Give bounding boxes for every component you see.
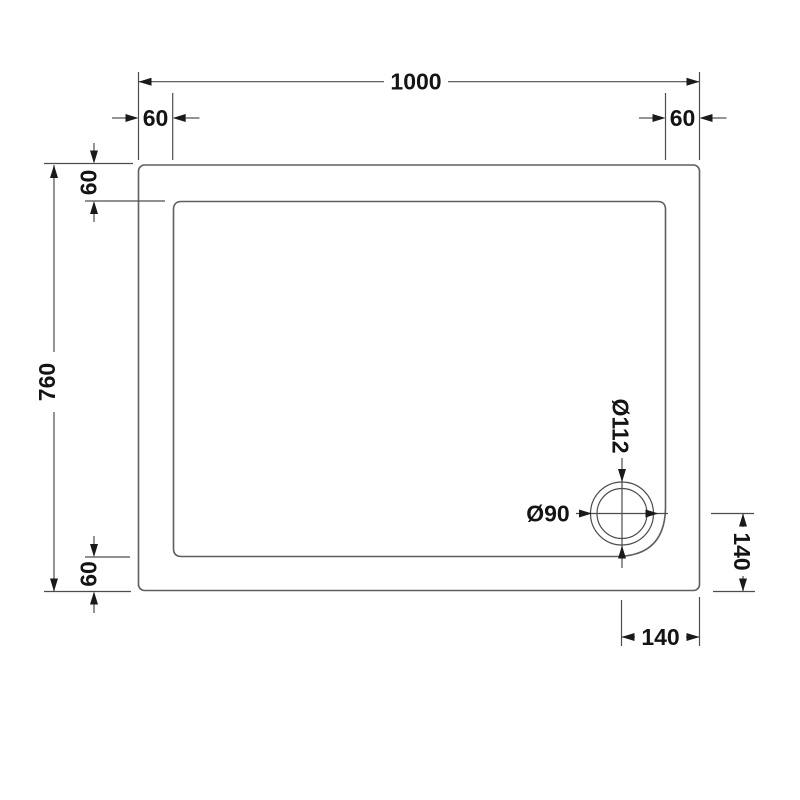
waste-inner-diameter-label: Ø90 xyxy=(526,501,569,527)
wall-top-right-label: 60 xyxy=(670,105,696,131)
arrowhead-right-icon xyxy=(687,78,700,86)
waste-offset-bottom-label: 140 xyxy=(641,624,679,650)
dim-overall-depth: 760 xyxy=(34,164,133,592)
arrowhead-up-icon xyxy=(90,592,98,605)
wall-top-left-label: 60 xyxy=(143,105,169,131)
arrowhead-right-icon xyxy=(653,114,666,122)
wall-left-bottom-label: 60 xyxy=(76,561,102,587)
arrowhead-left-icon xyxy=(173,114,186,122)
dim-wall-top-right: 60 xyxy=(639,93,727,160)
wall-left-top-label: 60 xyxy=(76,170,102,196)
waste-outer-diameter-label: Ø112 xyxy=(608,399,634,454)
overall-width-label: 1000 xyxy=(390,69,441,95)
arrowhead-right-icon xyxy=(126,114,139,122)
arrowhead-up-icon xyxy=(739,514,747,527)
arrowhead-down-icon xyxy=(618,469,626,482)
dim-wall-left-bottom: 60 xyxy=(76,536,131,613)
arrowhead-left-icon xyxy=(139,78,152,86)
arrowhead-left-icon xyxy=(700,114,713,122)
dim-wall-top-left: 60 xyxy=(112,93,200,160)
overall-depth-label: 760 xyxy=(34,363,60,401)
waste-drain: Ø112 Ø90 xyxy=(526,399,668,569)
tray-outlines xyxy=(139,165,700,591)
arrowhead-up-icon xyxy=(50,165,58,178)
outer-tray-outline xyxy=(139,165,700,591)
arrowhead-down-icon xyxy=(90,544,98,557)
arrowhead-down-icon xyxy=(90,151,98,164)
arrowhead-up-icon xyxy=(618,546,626,559)
dim-wall-left-top: 60 xyxy=(76,143,166,222)
arrowhead-up-icon xyxy=(90,201,98,214)
technical-drawing-canvas: Ø112 Ø90 1000 60 60 760 xyxy=(0,0,800,800)
arrowhead-down-icon xyxy=(50,579,58,592)
shower-tray-drawing: Ø112 Ø90 1000 60 60 760 xyxy=(0,0,800,800)
arrowhead-down-icon xyxy=(739,579,747,592)
arrowhead-right-icon xyxy=(687,633,700,641)
dim-overall-width: 1000 xyxy=(139,69,700,161)
arrowhead-left-icon xyxy=(622,633,635,641)
waste-offset-right-label: 140 xyxy=(729,532,755,570)
dim-waste-offset-right: 140 xyxy=(711,514,755,592)
arrowhead-right-icon xyxy=(646,510,659,518)
dim-waste-offset-bottom: 140 xyxy=(622,597,700,650)
